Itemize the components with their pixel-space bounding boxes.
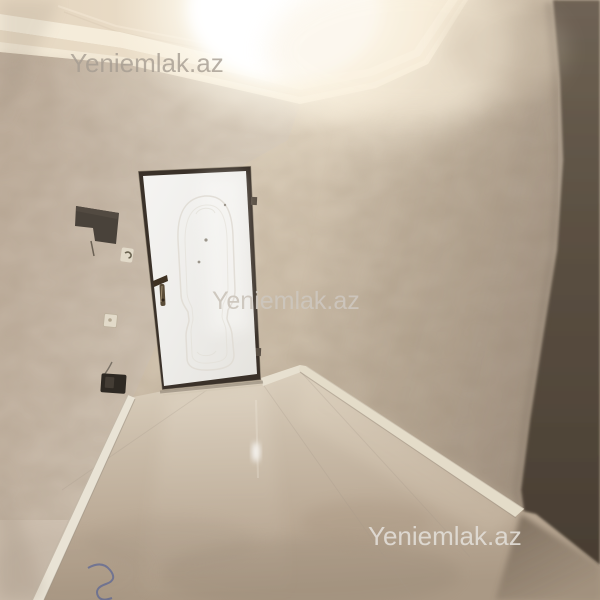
svg-text:Yeniemlak.az: Yeniemlak.az <box>212 287 360 315</box>
svg-text:Yeniemlak.az: Yeniemlak.az <box>368 521 522 551</box>
svg-text:Yeniemlak.az: Yeniemlak.az <box>70 48 224 78</box>
